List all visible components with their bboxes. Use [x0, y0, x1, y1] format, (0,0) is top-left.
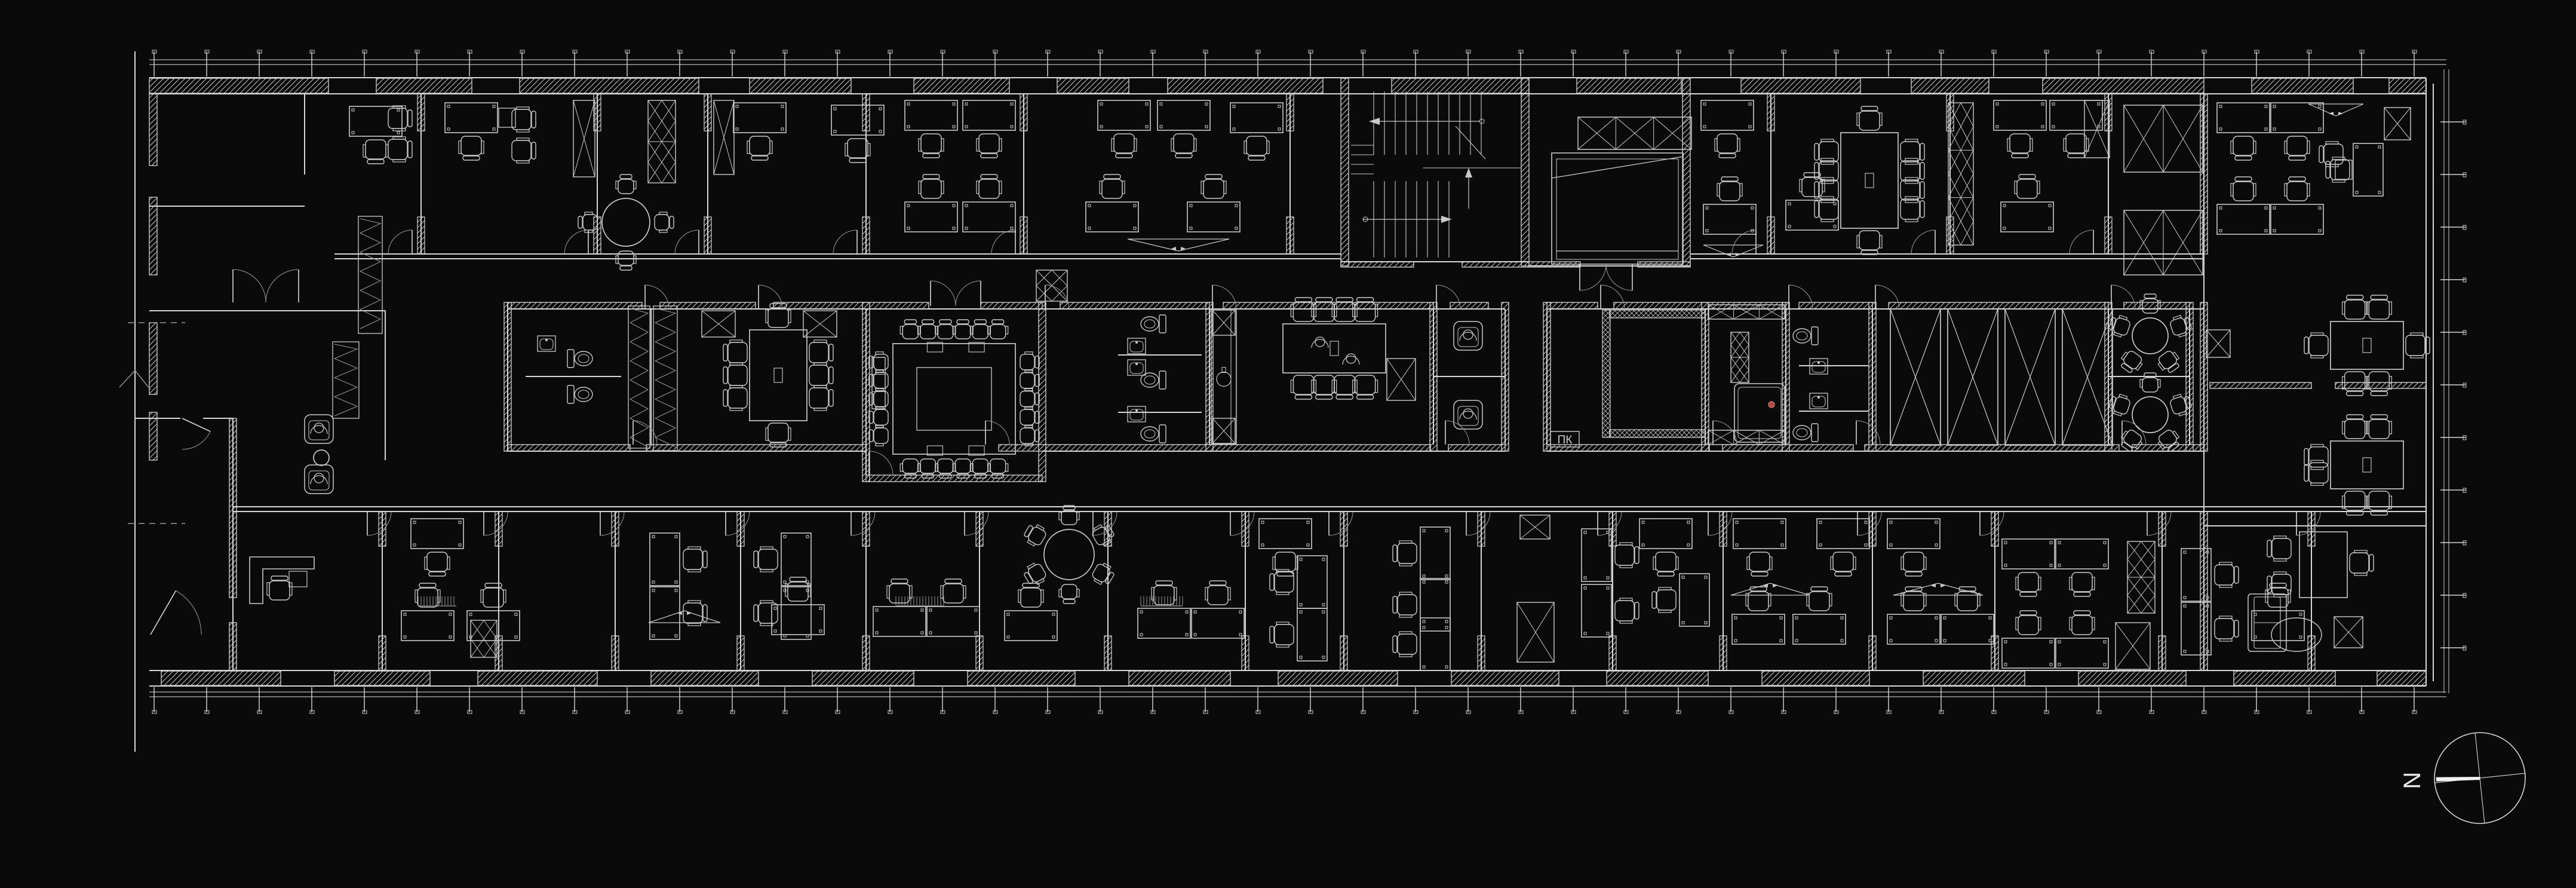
- desk: [963, 174, 1015, 232]
- rect: [1719, 154, 1736, 158]
- rect: [874, 391, 888, 407]
- rect: [2184, 650, 2186, 653]
- task-chair: [1831, 552, 1856, 576]
- rect: [2050, 541, 2052, 544]
- door-swing: [266, 270, 299, 302]
- person-figure: [1460, 409, 1476, 419]
- task-chair: [2285, 177, 2310, 201]
- rect: [1300, 656, 1302, 659]
- task-chair: [2140, 373, 2160, 392]
- hatched-wall: [750, 78, 851, 93]
- rect: [1283, 324, 1386, 373]
- rect: [1859, 111, 1880, 130]
- rect: [2050, 100, 2102, 130]
- rect: [2104, 541, 2106, 544]
- rect: [1615, 601, 1634, 621]
- rect: [1300, 611, 1302, 613]
- task-chair: [919, 174, 944, 198]
- stairs: [1351, 91, 1521, 258]
- task-chair: [1901, 552, 1926, 576]
- rect: [1156, 581, 1172, 585]
- rect: [1582, 584, 1611, 637]
- rect: [1011, 204, 1013, 207]
- rect: [1278, 105, 1281, 108]
- rect: [269, 581, 290, 600]
- toilet-icon: [1141, 425, 1166, 443]
- rect: [1399, 654, 1412, 657]
- rect: [2378, 191, 2381, 194]
- rect: [2331, 321, 2403, 369]
- rect: [411, 519, 463, 549]
- rect: [2265, 105, 2267, 108]
- rect: [1393, 636, 1397, 653]
- desk: [905, 174, 957, 232]
- hatched-wall: [2335, 382, 2426, 388]
- rect: [401, 611, 454, 641]
- rect: [1275, 552, 1295, 571]
- rect: [772, 605, 824, 635]
- shower-tray: [1734, 384, 1785, 442]
- desk: [1817, 519, 1869, 576]
- rect: [1061, 584, 1077, 599]
- curtain-wall-mullions: [149, 50, 2466, 714]
- rect: [688, 623, 701, 626]
- rect: [1399, 615, 1412, 617]
- hatched-wall: [149, 323, 157, 394]
- rect: [2058, 564, 2061, 567]
- hatched-wall: [161, 671, 281, 685]
- task-chair: [809, 363, 833, 388]
- task-chair: [2156, 348, 2183, 376]
- path: [1911, 230, 1935, 254]
- rect: [333, 342, 359, 418]
- rect: [2217, 204, 2270, 234]
- round-table-top: [2132, 397, 2168, 433]
- rect: [1642, 544, 1644, 546]
- rect: [754, 551, 758, 568]
- rect: [1297, 556, 1327, 608]
- whiteboard: [2308, 104, 2363, 116]
- rect: [922, 320, 934, 324]
- rect: [907, 204, 910, 207]
- path: [991, 230, 1015, 254]
- rect: [788, 428, 791, 440]
- rect: [1005, 611, 1057, 641]
- desk: [2217, 103, 2270, 160]
- rect: [1316, 395, 1332, 399]
- rect: [733, 103, 786, 133]
- task-chair: [1653, 552, 1678, 576]
- task-chair: [2342, 295, 2368, 319]
- rect: [1059, 589, 1061, 597]
- rect: [1398, 634, 1417, 654]
- rect: [999, 139, 1002, 151]
- rect: [1186, 611, 1188, 613]
- task-chair: [1717, 177, 1742, 201]
- rect: [2265, 229, 2267, 232]
- hatched-wall: [149, 94, 157, 166]
- rect: [963, 202, 1015, 232]
- rect: [1270, 574, 1274, 590]
- desk: [2271, 103, 2323, 160]
- rect: [616, 181, 618, 189]
- round-table-top: [602, 198, 650, 246]
- door-swing: [1713, 421, 1737, 445]
- person-figure: [1312, 337, 1328, 348]
- rect: [1445, 666, 1448, 668]
- rect: [1819, 199, 1838, 219]
- rect: [1780, 617, 1782, 619]
- rect: [1235, 204, 1238, 207]
- rect: [730, 385, 742, 388]
- rect: [618, 179, 634, 194]
- rect: [483, 588, 503, 607]
- task-chair: [869, 425, 888, 446]
- task-chair: [1393, 541, 1417, 566]
- rect: [1941, 614, 1994, 644]
- rect: [1943, 639, 1946, 642]
- rect: [1140, 611, 1143, 613]
- rect: [809, 342, 828, 363]
- rect: [929, 609, 932, 611]
- hatched-wall: [1039, 302, 1046, 482]
- rect: [2074, 611, 2090, 615]
- rect: [2113, 317, 2131, 336]
- rect: [876, 352, 883, 354]
- task-chair: [683, 547, 707, 572]
- desk: [467, 583, 520, 641]
- rect: [2411, 333, 2423, 335]
- hatched-wall: [773, 302, 929, 309]
- rect: [759, 603, 778, 623]
- rect: [965, 103, 968, 105]
- path: [1606, 264, 1632, 290]
- task-chair: [723, 363, 747, 388]
- rect: [2353, 143, 2383, 196]
- rect: [1687, 544, 1690, 546]
- rect: [1736, 521, 1738, 523]
- task-chair: [1955, 587, 1980, 611]
- rect: [2233, 182, 2253, 201]
- rect: [1584, 531, 1586, 534]
- task-chair: [1020, 389, 1039, 409]
- rect: [2274, 595, 2286, 597]
- rect: [970, 464, 972, 471]
- rect: [955, 324, 971, 339]
- rect: [953, 227, 955, 229]
- rect: [1100, 125, 1103, 128]
- desk: [401, 583, 454, 641]
- desk: [1098, 100, 1150, 158]
- rect: [1607, 577, 1609, 579]
- rect: [1171, 139, 1174, 151]
- furniture: [250, 91, 2430, 670]
- rect: [363, 145, 366, 157]
- rect: [1025, 425, 1033, 428]
- rect: [1943, 617, 1946, 619]
- rect: [2068, 154, 2084, 158]
- desk: [1393, 578, 1450, 631]
- rect: [1248, 156, 1265, 160]
- rect: [1445, 620, 1448, 623]
- wall-line: [1552, 157, 1683, 178]
- desk: [1157, 100, 1210, 158]
- rect: [413, 544, 416, 546]
- rect: [675, 535, 677, 538]
- rect: [388, 139, 407, 160]
- shaft-wall: [1610, 310, 1705, 318]
- rect: [512, 140, 531, 161]
- person-figure: [1343, 354, 1359, 365]
- rect: [515, 636, 517, 638]
- rect: [723, 344, 727, 361]
- desk: [2056, 611, 2108, 668]
- rect: [616, 256, 618, 264]
- rect: [413, 521, 416, 523]
- door-swing: [1606, 264, 1632, 290]
- task-chair: [1715, 134, 1740, 158]
- task-chair: [977, 134, 1002, 158]
- hatched-wall: [520, 78, 699, 93]
- rect: [1615, 545, 1634, 565]
- rect: [1841, 639, 1843, 642]
- rect: [1103, 563, 1111, 569]
- rect: [675, 589, 677, 592]
- rect: [1086, 202, 1138, 232]
- rect: [1100, 181, 1102, 194]
- rect: [1859, 231, 1880, 250]
- rect: [2058, 663, 2061, 666]
- rect: [2072, 616, 2092, 635]
- rect: [512, 109, 531, 130]
- rect: [1642, 521, 1644, 523]
- desk: [1187, 174, 1240, 232]
- round-table-top: [314, 450, 329, 466]
- desk: [1393, 618, 1450, 670]
- path: [931, 281, 956, 306]
- rect: [2184, 596, 2186, 599]
- rect: [2331, 160, 2350, 180]
- door-swing: [675, 230, 699, 254]
- rect: [920, 459, 936, 473]
- rect: [1154, 586, 1174, 605]
- rect: [2378, 146, 2381, 148]
- rect: [2233, 136, 2253, 155]
- round-table-top: [1044, 529, 1094, 580]
- rect: [1657, 572, 1674, 576]
- whiteboard: [649, 611, 720, 623]
- rect: [1887, 614, 1940, 644]
- rect: [999, 181, 1002, 194]
- rect: [1211, 309, 1236, 444]
- rect: [2234, 567, 2239, 583]
- rect: [907, 103, 910, 105]
- hatched-wall: [1060, 302, 1209, 309]
- meeting-table: [2304, 415, 2403, 515]
- rect: [2017, 179, 2037, 198]
- task-chair: [1857, 231, 1882, 255]
- rect: [2020, 592, 2037, 596]
- rect: [2058, 641, 2061, 643]
- rect: [1094, 525, 1102, 531]
- rect: [759, 549, 778, 569]
- desk: [1639, 519, 1692, 576]
- rect: [2219, 585, 2232, 587]
- rect: [728, 388, 747, 408]
- rect: [904, 320, 916, 324]
- rect: [845, 143, 848, 156]
- hatched-wall: [2078, 671, 2186, 685]
- rect: [445, 103, 498, 133]
- rect: [481, 590, 483, 602]
- rect: [1041, 590, 1043, 602]
- rect: [1061, 510, 1077, 525]
- rect: [766, 310, 768, 323]
- rect: [1025, 352, 1033, 354]
- rect: [1025, 370, 1033, 373]
- rect: [2319, 207, 2321, 209]
- hatched-wall: [508, 445, 630, 451]
- rect: [2003, 204, 2006, 207]
- rect: [2369, 300, 2389, 319]
- path: [334, 344, 357, 416]
- hatched-wall: [149, 197, 157, 275]
- task-chair: [809, 385, 833, 411]
- path: [2308, 104, 2363, 116]
- shaft-wall: [1610, 430, 1705, 437]
- rect: [1157, 100, 1210, 130]
- rect: [1393, 596, 1397, 613]
- rect: [652, 535, 655, 538]
- rect: [907, 227, 910, 229]
- desk: [2001, 174, 2053, 232]
- rect: [939, 320, 951, 324]
- rect: [1703, 103, 1706, 105]
- rect: [2356, 191, 2358, 194]
- rect: [1052, 636, 1055, 638]
- meeting-table: [2304, 295, 2430, 396]
- rect: [1159, 425, 1166, 443]
- task-chair: [2366, 295, 2391, 319]
- rect: [449, 613, 452, 616]
- rect: [1300, 604, 1302, 606]
- rect: [941, 586, 943, 598]
- double-door-swing: [1580, 264, 1632, 290]
- rect: [1652, 592, 1656, 608]
- rect: [876, 443, 883, 446]
- rect: [1020, 354, 1034, 370]
- rect: [834, 108, 836, 110]
- rect: [876, 609, 878, 611]
- door-leaf: [151, 590, 176, 635]
- rect: [1102, 179, 1122, 198]
- locker-strip: [1731, 332, 1749, 382]
- rect: [1903, 552, 1924, 571]
- door-swing: [1445, 421, 1469, 445]
- rect: [2058, 541, 2061, 544]
- rect: [1259, 519, 1312, 549]
- rect: [921, 609, 923, 611]
- task-chair: [1152, 581, 1177, 605]
- rect: [1186, 633, 1188, 636]
- rect: [935, 464, 938, 471]
- rect: [1734, 639, 1737, 642]
- exec-desk: [2299, 532, 2347, 598]
- rect: [953, 326, 955, 334]
- storage-cabinet: [2206, 330, 2230, 357]
- person-figure: [311, 473, 327, 484]
- desk: [1703, 177, 1756, 234]
- door-swing: [1732, 230, 1756, 254]
- rect: [1233, 105, 1235, 108]
- hatched-wall: [1923, 671, 2025, 685]
- compass-cross: [2430, 728, 2529, 828]
- elevator-shaft: [1890, 309, 1941, 445]
- rect: [2369, 419, 2389, 439]
- rect: [2144, 294, 2156, 298]
- round-table-top: [2132, 318, 2168, 354]
- task-chair: [1112, 134, 1137, 158]
- rect: [2050, 564, 2052, 567]
- rect: [2050, 641, 2052, 643]
- rect: [1458, 327, 1478, 347]
- rect: [1687, 521, 1690, 523]
- rect: [469, 613, 472, 616]
- bowtie-shelf: [1517, 602, 1554, 662]
- rect: [493, 105, 495, 108]
- desk: [445, 103, 515, 160]
- rect: [2098, 103, 2100, 105]
- rect: [751, 156, 768, 160]
- rect: [1077, 512, 1079, 520]
- rect: [1445, 575, 1448, 577]
- rect: [2273, 105, 2276, 108]
- rect: [2272, 538, 2291, 559]
- rect: [1552, 153, 1683, 264]
- task-chair: [1291, 375, 1316, 399]
- rect: [1205, 103, 1208, 105]
- rect: [1393, 545, 1397, 562]
- rect: [1890, 617, 1892, 619]
- rect: [427, 552, 447, 571]
- rect: [965, 227, 968, 229]
- rect: [417, 588, 438, 607]
- rect: [963, 100, 1015, 130]
- rect: [1261, 544, 1264, 546]
- task-chair: [2304, 445, 2328, 470]
- rect: [425, 557, 427, 569]
- rect: [1656, 552, 1676, 571]
- task-chair: [1312, 375, 1337, 399]
- rect: [1336, 298, 1353, 302]
- desk: [963, 100, 1015, 158]
- rect: [1584, 632, 1586, 635]
- rect: [975, 609, 977, 611]
- hatched-wall: [2234, 671, 2335, 685]
- rect: [1749, 125, 1751, 128]
- rect: [1736, 544, 1738, 546]
- rect: [683, 549, 702, 569]
- fire-cabinet-label: ПК: [1558, 434, 1573, 446]
- rect: [567, 350, 574, 368]
- desk: [927, 579, 980, 636]
- rect: [1812, 424, 1818, 442]
- shelf-unit: [2124, 105, 2203, 172]
- rect: [760, 601, 773, 603]
- rect: [1780, 639, 1782, 642]
- rect: [1620, 598, 1632, 601]
- rect: [1420, 578, 1450, 631]
